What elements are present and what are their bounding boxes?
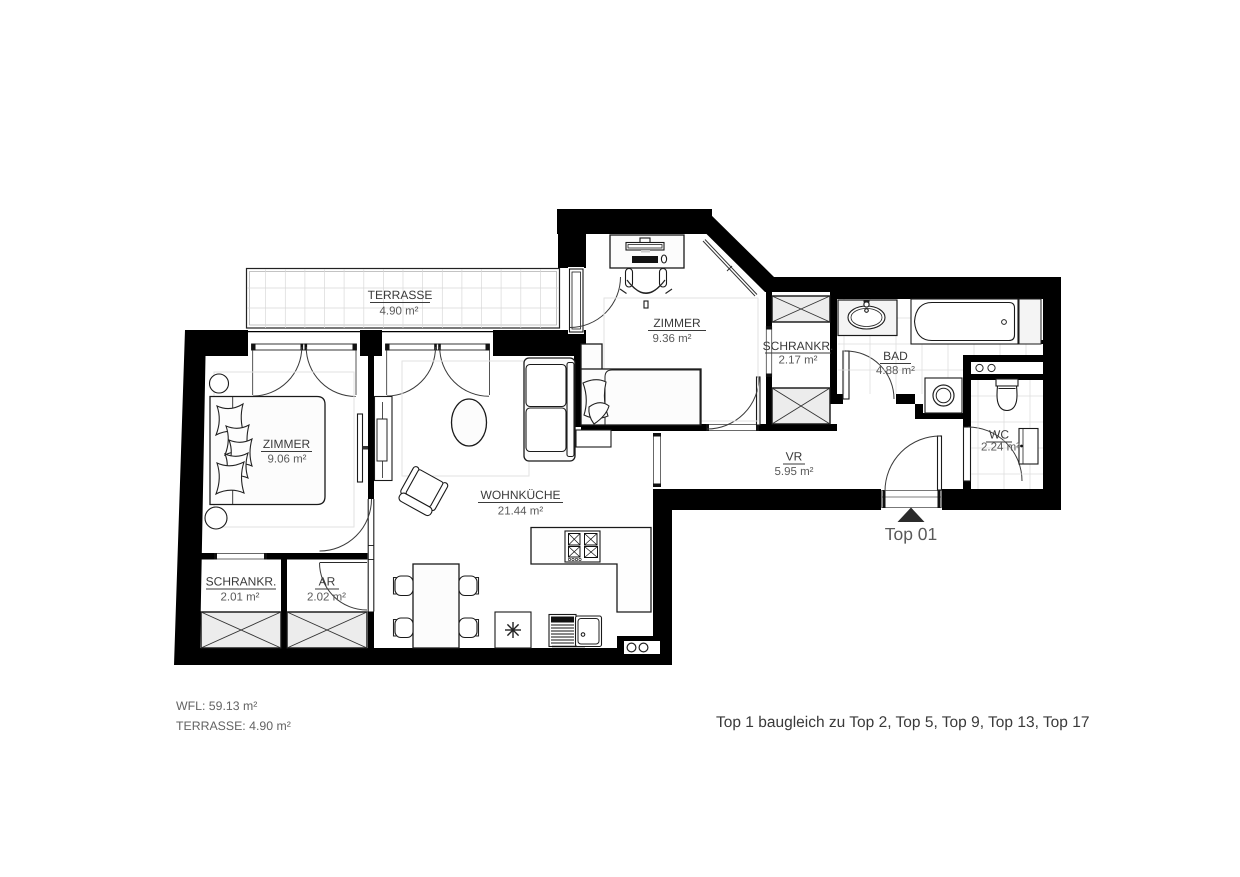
svg-text:ZIMMER: ZIMMER xyxy=(263,437,311,451)
svg-text:4.90 m²: 4.90 m² xyxy=(380,306,419,318)
svg-text:SCHRANKR.: SCHRANKR. xyxy=(206,575,277,589)
svg-text:BAD: BAD xyxy=(883,349,908,363)
svg-text:2.24 m²: 2.24 m² xyxy=(981,442,1020,454)
svg-text:TERRASSE: 4.90 m²: TERRASSE: 4.90 m² xyxy=(176,719,291,733)
svg-text:4.88 m²: 4.88 m² xyxy=(876,365,915,377)
svg-text:Top 1 baugleich zu Top 2, Top: Top 1 baugleich zu Top 2, Top 5, Top 9, … xyxy=(716,714,1089,731)
svg-text:2.17 m²: 2.17 m² xyxy=(779,355,818,367)
svg-text:WC: WC xyxy=(989,428,1009,442)
svg-text:WOHNKÜCHE: WOHNKÜCHE xyxy=(481,488,561,502)
svg-text:AR: AR xyxy=(319,575,336,589)
svg-text:WFL: 59.13 m²: WFL: 59.13 m² xyxy=(176,699,257,713)
svg-text:ZIMMER: ZIMMER xyxy=(653,316,701,330)
svg-text:9.06 m²: 9.06 m² xyxy=(268,454,307,466)
svg-text:5.95 m²: 5.95 m² xyxy=(775,466,814,478)
svg-text:2.01 m²: 2.01 m² xyxy=(221,592,260,604)
svg-text:VR: VR xyxy=(786,450,803,464)
svg-text:9.36 m²: 9.36 m² xyxy=(653,333,692,345)
svg-text:TERRASSE: TERRASSE xyxy=(368,288,433,302)
svg-text:Top 01: Top 01 xyxy=(885,524,938,544)
svg-text:2.02 m²: 2.02 m² xyxy=(307,592,346,604)
svg-text:21.44 m²: 21.44 m² xyxy=(498,506,544,518)
svg-text:SCHRANKR.: SCHRANKR. xyxy=(763,339,834,353)
